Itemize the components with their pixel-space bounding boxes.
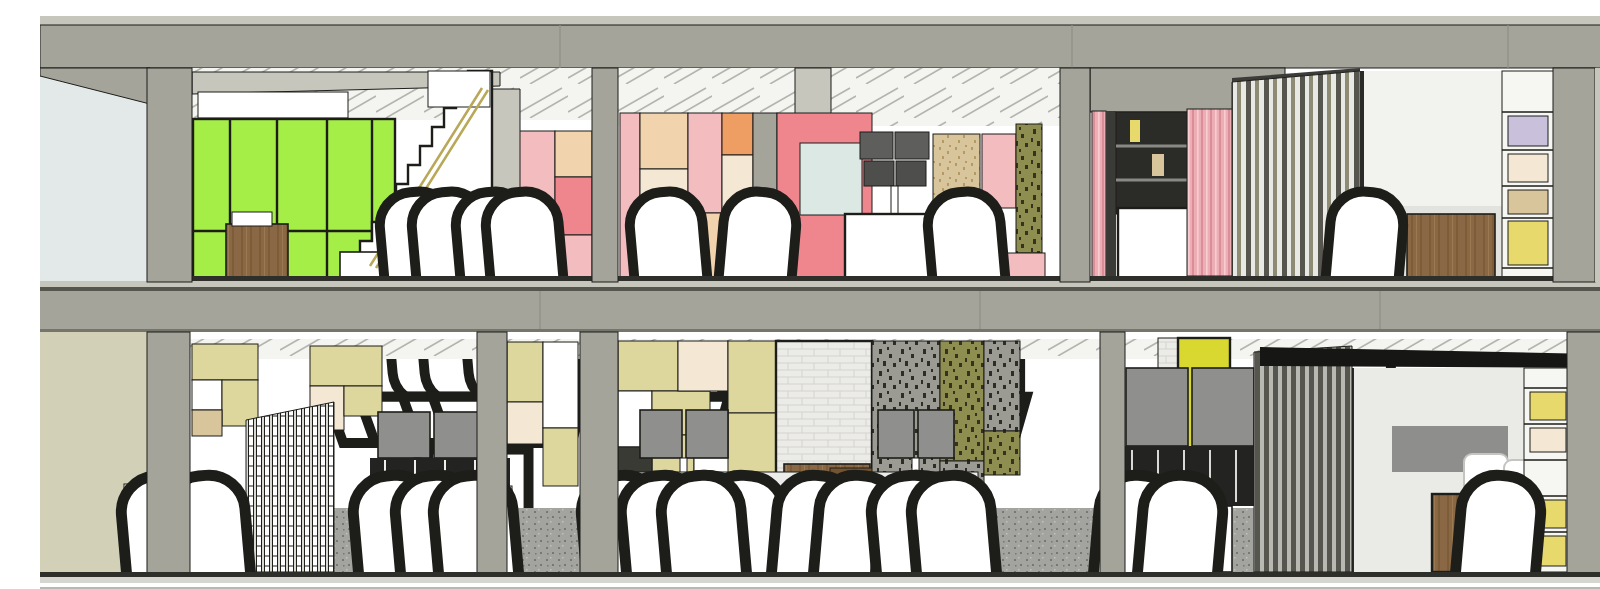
dark-slat-screen	[1254, 346, 1352, 572]
lounge-booth	[1092, 109, 1236, 279]
column-upper-1	[147, 68, 192, 282]
ground-slab	[40, 572, 1600, 589]
top-beam	[40, 25, 1600, 68]
wood-desk-upper-right	[1407, 214, 1495, 279]
pink-curtain	[1187, 109, 1236, 276]
ceiling-soffit-box	[198, 92, 348, 118]
column-upper-4	[1553, 68, 1595, 282]
upper-floor-line	[147, 276, 1597, 281]
column-upper-2	[592, 68, 618, 282]
column-upper-3	[1060, 68, 1090, 282]
shelf-unit-upper	[1502, 71, 1558, 279]
wood-desk-upper-left	[226, 224, 288, 279]
column-ground-5	[1567, 332, 1600, 574]
desk-monitor	[232, 212, 272, 226]
office-section-rendering: Two-storey office interior — sectional c…	[40, 16, 1600, 589]
white-slat-partition	[246, 402, 334, 572]
section-canvas	[40, 16, 1600, 589]
column-ground-4	[1100, 332, 1125, 574]
column-ground-1	[147, 332, 190, 574]
monitor-canopy	[378, 412, 430, 458]
parapet-strip	[40, 16, 1600, 25]
mid-slab	[40, 281, 1600, 332]
column-ground-3	[580, 332, 618, 574]
column-ground-2	[477, 332, 507, 574]
glass-pane	[800, 143, 862, 215]
wall-edge-upper-right	[1595, 68, 1600, 282]
